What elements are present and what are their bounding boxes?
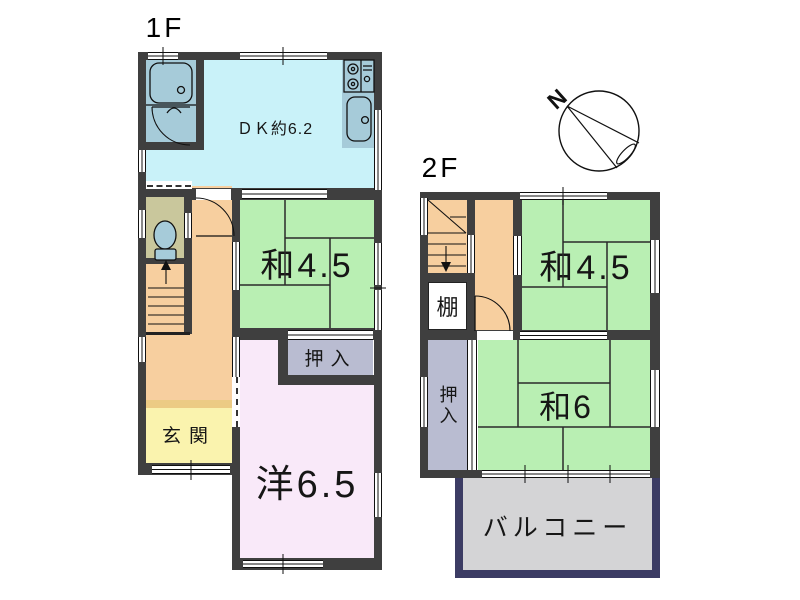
wall-segment — [196, 60, 204, 150]
wall-segment — [146, 142, 204, 150]
wall-segment — [146, 332, 190, 335]
balcony-rail — [455, 570, 660, 578]
entrance-door — [152, 465, 230, 474]
window — [420, 377, 428, 427]
room-label-oshiire-1f: 押入 — [288, 340, 373, 375]
room-label-oshiire-2f: 押入 — [428, 368, 467, 444]
door-opening — [196, 189, 231, 200]
window — [650, 370, 660, 427]
sliding-door — [184, 213, 192, 238]
room-label-youshitsu: 洋6.5 — [240, 420, 374, 540]
sliding-door — [520, 331, 607, 340]
room-label-washitsu45-2f: 和4.5 — [522, 200, 650, 328]
wall-segment — [184, 264, 192, 334]
window — [520, 192, 607, 200]
room-label-washitsu6: 和6 — [522, 383, 610, 427]
room-label-dk: ＤＫ約6.2 — [205, 112, 345, 142]
floorplan-canvas: 1F ＤＫ約6.2 和4.5 押入 玄関 洋6. — [0, 0, 800, 600]
room-bathroom — [146, 60, 196, 142]
sliding-door — [232, 242, 240, 290]
window — [374, 243, 382, 285]
window — [650, 240, 660, 293]
room-label-washitsu-1f: 和4.5 — [240, 200, 374, 324]
sliding-door — [232, 337, 240, 377]
window — [374, 290, 382, 330]
stairs-area-1f — [146, 264, 184, 332]
stairs-area-2f — [428, 200, 467, 273]
window — [138, 210, 146, 238]
window — [138, 150, 146, 172]
door-opening — [477, 331, 513, 340]
room-hallway-2f — [475, 200, 513, 330]
balcony-rail — [455, 478, 463, 578]
genkan-step — [146, 400, 232, 408]
wall-segment — [138, 52, 146, 475]
room-label-genkan: 玄関 — [146, 408, 232, 460]
sliding-door — [242, 189, 327, 199]
kitchen-counter — [342, 58, 374, 148]
window — [138, 337, 146, 362]
window — [240, 52, 327, 60]
floorplan-annotations — [0, 0, 800, 600]
dashed-opening — [236, 377, 238, 427]
sliding-door — [513, 236, 522, 275]
window — [148, 52, 178, 60]
closet-door — [467, 340, 477, 470]
balcony-rail — [652, 478, 660, 578]
window — [374, 473, 382, 517]
wall-segment — [278, 375, 382, 385]
window — [243, 560, 323, 568]
window — [482, 470, 650, 478]
room-label-tana: 棚 — [428, 284, 467, 328]
window — [374, 110, 382, 190]
wall-segment — [420, 273, 475, 282]
sliding-door — [467, 235, 475, 273]
window — [420, 198, 428, 235]
sliding-door — [288, 330, 373, 340]
floor1-label: 1F — [140, 12, 190, 44]
compass-north-label: N — [537, 79, 577, 119]
room-label-balcony: バルコニー — [463, 482, 652, 570]
floor2-label: 2F — [416, 152, 466, 184]
wall-segment — [467, 192, 475, 235]
room-toilet — [146, 195, 184, 258]
dashed-opening — [147, 185, 191, 187]
